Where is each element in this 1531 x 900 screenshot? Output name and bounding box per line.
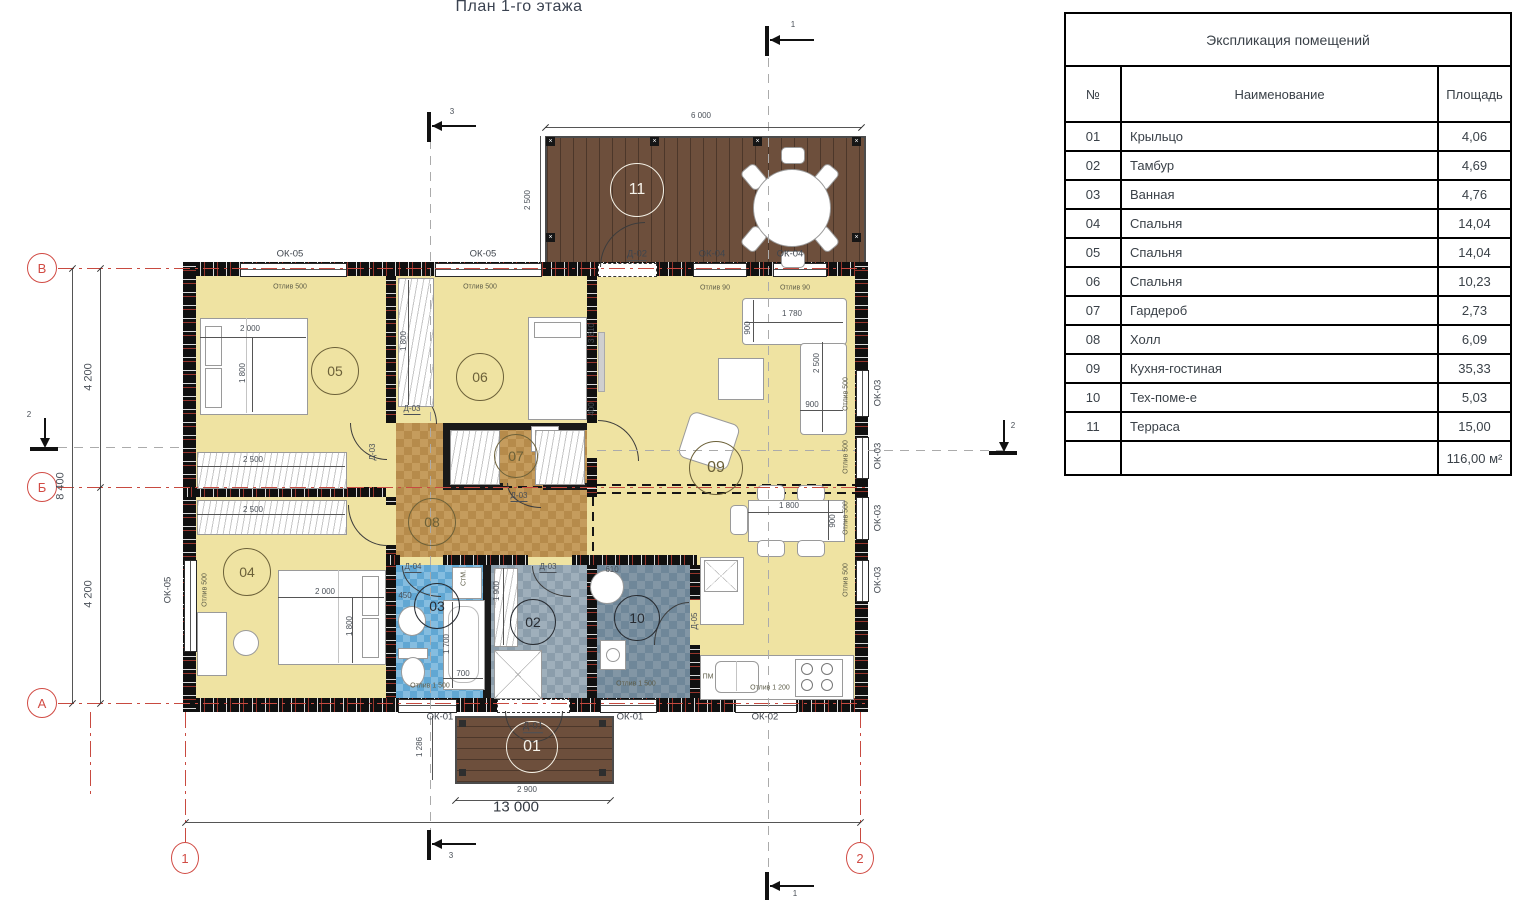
cell-area: 4,76 bbox=[1438, 180, 1511, 209]
axis-line-red bbox=[58, 268, 868, 269]
wall bbox=[443, 423, 450, 490]
door-label: Д-03 bbox=[404, 405, 421, 415]
wall bbox=[443, 555, 528, 565]
dim-label: 1 800 bbox=[239, 363, 247, 383]
cell-area: 4,06 bbox=[1438, 122, 1511, 151]
sill-label: Отлив 500 bbox=[843, 501, 850, 535]
stove-burner bbox=[801, 679, 813, 691]
cell-area: 2,73 bbox=[1438, 296, 1511, 325]
door-label: Д-03 bbox=[511, 492, 528, 502]
section-label: 1 bbox=[791, 21, 795, 29]
dim-line bbox=[753, 300, 754, 342]
dim-line bbox=[822, 342, 823, 432]
sink-divider bbox=[736, 661, 737, 691]
dim-line bbox=[432, 716, 433, 780]
chair bbox=[233, 630, 259, 656]
closet bbox=[535, 430, 585, 485]
table-row: 02Тамбур4,69 bbox=[1065, 151, 1511, 180]
window-label: ОК-01 bbox=[427, 712, 454, 722]
cell-area: 4,69 bbox=[1438, 151, 1511, 180]
dim-label: 400 bbox=[588, 402, 596, 415]
entry-mat bbox=[494, 650, 542, 699]
window-label: ОК-03 bbox=[873, 443, 883, 470]
sill-label: Отлив 500 bbox=[843, 377, 850, 411]
axis-circle-b: Б bbox=[27, 472, 57, 502]
desk bbox=[197, 612, 227, 676]
cell-area: 6,09 bbox=[1438, 325, 1511, 354]
deck-post bbox=[459, 720, 466, 727]
section-marker bbox=[765, 872, 769, 900]
door-label: Д-04 bbox=[405, 563, 422, 573]
dim-tick bbox=[858, 124, 865, 131]
dim-line bbox=[252, 337, 253, 412]
cell-name: Спальня bbox=[1121, 238, 1438, 267]
total-area: 116,00 м² bbox=[1438, 441, 1511, 475]
sill-label: Отлив 500 bbox=[463, 284, 497, 291]
table-row: 10Тех-поме-е5,03 bbox=[1065, 383, 1511, 412]
section-arrow bbox=[770, 35, 780, 45]
section-arrow bbox=[432, 121, 442, 131]
cell-num: 04 bbox=[1065, 209, 1121, 238]
axis-line-red bbox=[58, 487, 868, 488]
sofa bbox=[800, 343, 847, 435]
room-table-body: 01Крыльцо4,0602Тамбур4,6903Ванная4,7604С… bbox=[1065, 122, 1511, 441]
appliance-label: ПМ bbox=[703, 674, 714, 681]
cell-num: 05 bbox=[1065, 238, 1121, 267]
section-marker bbox=[427, 112, 431, 142]
dim-label: 2 500 bbox=[243, 456, 263, 464]
sill-label: Отлив 90 bbox=[780, 285, 810, 292]
door-label: Д-05 bbox=[691, 613, 699, 630]
room-circle-09: 09 bbox=[689, 441, 743, 495]
section-arrow bbox=[770, 881, 780, 891]
sill-label: Отлив 1 200 bbox=[750, 685, 790, 692]
table-total-row: 116,00 м² bbox=[1065, 441, 1511, 475]
dim-line bbox=[408, 280, 409, 405]
cell-num: 09 bbox=[1065, 354, 1121, 383]
cell-num: 11 bbox=[1065, 412, 1121, 441]
chair bbox=[757, 540, 785, 557]
section-label: 1 bbox=[793, 890, 797, 898]
dim-label: 900 bbox=[744, 321, 752, 334]
dim-label: 610 bbox=[605, 566, 618, 574]
chair bbox=[781, 147, 805, 164]
section-label: 2 bbox=[27, 411, 31, 419]
deck-post: × bbox=[852, 233, 861, 242]
door-label: Д-02 bbox=[627, 249, 647, 261]
dim-label: 900 bbox=[805, 401, 818, 409]
dim-label: 2 500 bbox=[243, 506, 263, 514]
dim-label: 1 800 bbox=[779, 502, 799, 510]
explication-table: Экспликация помещений № Наименование Пло… bbox=[1064, 12, 1512, 476]
window-label: ОК-05 bbox=[277, 249, 304, 259]
table-header-row: № Наименование Площадь bbox=[1065, 66, 1511, 122]
wardrobe bbox=[197, 500, 347, 535]
cell-area: 35,33 bbox=[1438, 354, 1511, 383]
sill-label: Отлив 500 bbox=[273, 284, 307, 291]
window bbox=[184, 560, 197, 652]
dim-line bbox=[745, 322, 843, 323]
dim-label: 8 400 bbox=[56, 472, 67, 500]
table-row: 06Спальня10,23 bbox=[1065, 267, 1511, 296]
cell-name: Спальня bbox=[1121, 209, 1438, 238]
dim-label: 13 000 bbox=[493, 800, 539, 815]
section-line bbox=[58, 447, 183, 448]
appliance-label: СтМ. bbox=[461, 570, 468, 586]
room-circle-10: 10 bbox=[614, 595, 660, 641]
dim-tick bbox=[607, 797, 614, 804]
table-row: 04Спальня14,04 bbox=[1065, 209, 1511, 238]
table-row: 01Крыльцо4,06 bbox=[1065, 122, 1511, 151]
wall bbox=[587, 458, 597, 497]
window bbox=[856, 437, 869, 479]
cell-name: Ванная bbox=[1121, 180, 1438, 209]
wall bbox=[386, 545, 396, 698]
wall bbox=[386, 276, 396, 423]
cell-num: 10 bbox=[1065, 383, 1121, 412]
stove-burner bbox=[821, 679, 833, 691]
dim-line bbox=[278, 597, 384, 598]
col-header-name: Наименование bbox=[1121, 66, 1438, 122]
sill-label: Отлив 1 500 bbox=[410, 683, 450, 690]
window bbox=[240, 263, 347, 277]
cell-name: Спальня bbox=[1121, 267, 1438, 296]
deck-post: × bbox=[852, 137, 861, 146]
dim-label: 1 700 bbox=[443, 634, 451, 654]
deck-post: × bbox=[546, 233, 555, 242]
deck-post: × bbox=[546, 137, 555, 146]
cell-num: 02 bbox=[1065, 151, 1121, 180]
table-row: 07Гардероб2,73 bbox=[1065, 296, 1511, 325]
door-label: Д-03 bbox=[540, 563, 557, 573]
drawing-sheet: План 1-го этажа bbox=[0, 0, 1531, 900]
sill-label: Отлив 500 bbox=[843, 440, 850, 474]
dim-label: 900 bbox=[829, 514, 837, 527]
cell-num: 08 bbox=[1065, 325, 1121, 354]
dim-line bbox=[200, 337, 306, 338]
sink bbox=[704, 560, 738, 592]
cell-area: 5,03 bbox=[1438, 383, 1511, 412]
pillow bbox=[362, 576, 379, 616]
axis-circle-1: 1 bbox=[171, 842, 199, 874]
cell-name: Тех-поме-е bbox=[1121, 383, 1438, 412]
deck-post: × bbox=[753, 137, 762, 146]
table-title: Экспликация помещений bbox=[1065, 13, 1511, 66]
axis-circle-a: А bbox=[27, 688, 57, 718]
pillow bbox=[205, 368, 222, 408]
cell-name: Гардероб bbox=[1121, 296, 1438, 325]
sill-label: Отлив 500 bbox=[843, 563, 850, 597]
wall bbox=[386, 555, 400, 565]
dim-label: 700 bbox=[456, 670, 469, 678]
chair bbox=[797, 540, 825, 557]
wardrobe bbox=[197, 452, 347, 489]
section-line bbox=[868, 450, 1005, 451]
door-label: Д-01 bbox=[523, 721, 543, 733]
section-marker bbox=[989, 451, 1017, 455]
wall bbox=[587, 276, 597, 423]
window-label: ОК-02 bbox=[752, 712, 779, 722]
section-marker bbox=[427, 830, 431, 860]
wall bbox=[443, 423, 587, 430]
blanket-line bbox=[338, 570, 339, 663]
cell-area: 14,04 bbox=[1438, 209, 1511, 238]
window-label: ОК-05 bbox=[470, 249, 497, 259]
dim-line bbox=[503, 568, 504, 645]
section-marker bbox=[765, 26, 769, 56]
cell-num: 01 bbox=[1065, 122, 1121, 151]
room-circle-02: 02 bbox=[510, 599, 556, 645]
window-label: ОК-05 bbox=[163, 577, 173, 604]
room-circle-06: 06 bbox=[456, 353, 504, 401]
dim-label: 2 500 bbox=[813, 353, 821, 373]
deck-post: × bbox=[650, 137, 659, 146]
dim-label: 1 780 bbox=[782, 310, 802, 318]
dim-label: 4 200 bbox=[84, 363, 95, 391]
window bbox=[856, 370, 869, 417]
boiler bbox=[590, 570, 624, 604]
pillow bbox=[534, 322, 581, 338]
window bbox=[856, 560, 869, 602]
dim-label: 2 000 bbox=[240, 325, 260, 333]
dim-label: 1 286 bbox=[416, 737, 424, 757]
dim-label: 2 500 bbox=[524, 190, 532, 210]
deck-post bbox=[599, 720, 606, 727]
section-label: 2 bbox=[1011, 422, 1015, 430]
door-label: Д-03 bbox=[369, 444, 377, 461]
dim-line bbox=[800, 410, 843, 411]
beam-dashed bbox=[592, 497, 594, 557]
window bbox=[693, 263, 747, 277]
window-label: ОК-03 bbox=[873, 380, 883, 407]
cell-name: Тамбур bbox=[1121, 151, 1438, 180]
cell-area: 14,04 bbox=[1438, 238, 1511, 267]
page-title: План 1-го этажа bbox=[455, 0, 582, 16]
cell-num: 07 bbox=[1065, 296, 1121, 325]
dim-line bbox=[545, 127, 862, 128]
wall bbox=[690, 565, 700, 600]
coffee-table bbox=[718, 358, 764, 400]
total-empty bbox=[1121, 441, 1438, 475]
deck-post bbox=[459, 769, 466, 776]
cell-area: 15,00 bbox=[1438, 412, 1511, 441]
section-arrow bbox=[432, 839, 442, 849]
dim-label: 3 810 bbox=[588, 323, 596, 343]
stove-burner bbox=[821, 663, 833, 675]
cell-area: 10,23 bbox=[1438, 267, 1511, 296]
dim-line bbox=[185, 822, 860, 823]
tv bbox=[598, 332, 605, 392]
window-label: ОК-03 bbox=[873, 567, 883, 594]
table-row: 11Терраса15,00 bbox=[1065, 412, 1511, 441]
pillow bbox=[205, 326, 222, 366]
axis-line-red bbox=[90, 712, 91, 794]
total-empty bbox=[1065, 441, 1121, 475]
axis-circle-2: 2 bbox=[846, 842, 874, 874]
table-row: 09Кухня-гостиная35,33 bbox=[1065, 354, 1511, 383]
room-circle-11: 11 bbox=[610, 163, 664, 217]
room-circle-07: 07 bbox=[494, 434, 538, 478]
dim-label: 2 900 bbox=[517, 786, 537, 794]
round-table bbox=[753, 169, 831, 247]
wall bbox=[572, 555, 697, 565]
col-header-area: Площадь bbox=[1438, 66, 1511, 122]
dim-line bbox=[197, 514, 345, 515]
sill-label: Отлив 500 bbox=[202, 573, 209, 607]
sill-label: Отлив 90 bbox=[700, 285, 730, 292]
wall bbox=[690, 645, 700, 698]
dim-line bbox=[443, 678, 483, 679]
cell-num: 06 bbox=[1065, 267, 1121, 296]
cell-name: Крыльцо bbox=[1121, 122, 1438, 151]
cell-name: Терраса bbox=[1121, 412, 1438, 441]
room-circle-04: 04 bbox=[223, 548, 271, 596]
section-line bbox=[430, 140, 431, 830]
window-label: ОК-03 bbox=[873, 505, 883, 532]
dim-line bbox=[540, 136, 541, 264]
section-label: 3 bbox=[449, 852, 453, 860]
stove-burner bbox=[801, 663, 813, 675]
dim-label: 1 900 bbox=[493, 581, 501, 601]
wall bbox=[386, 497, 396, 505]
dim-label: 2 000 bbox=[315, 588, 335, 596]
closet bbox=[450, 430, 500, 485]
section-line bbox=[768, 58, 769, 872]
window bbox=[435, 263, 542, 277]
section-marker bbox=[30, 447, 58, 451]
window-label: ОК-01 bbox=[617, 712, 644, 722]
window-label: ОК-04 bbox=[777, 249, 804, 259]
dim-label: 4 200 bbox=[84, 580, 95, 608]
col-header-num: № bbox=[1065, 66, 1121, 122]
axis-line-red bbox=[58, 703, 868, 704]
cell-num: 03 bbox=[1065, 180, 1121, 209]
table-row: 08Холл6,09 bbox=[1065, 325, 1511, 354]
washer-door bbox=[606, 648, 620, 662]
sill-label: Отлив 1 500 bbox=[616, 681, 656, 688]
dim-line bbox=[72, 268, 73, 703]
dim-label: 450 bbox=[398, 592, 411, 600]
table-row: 03Ванная4,76 bbox=[1065, 180, 1511, 209]
cell-name: Холл bbox=[1121, 325, 1438, 354]
dim-label: 6 000 bbox=[691, 112, 711, 120]
table-row: 05Спальня14,04 bbox=[1065, 238, 1511, 267]
section-label: 3 bbox=[450, 108, 454, 116]
dim-label: 1 800 bbox=[400, 331, 408, 351]
deck-post bbox=[599, 769, 606, 776]
cell-name: Кухня-гостиная bbox=[1121, 354, 1438, 383]
axis-circle-v: В bbox=[27, 253, 57, 283]
window-label: ОК-04 bbox=[699, 249, 726, 259]
room-circle-03: 03 bbox=[414, 583, 460, 629]
room-circle-05: 05 bbox=[311, 347, 359, 395]
window bbox=[856, 497, 869, 540]
table-title-row: Экспликация помещений bbox=[1065, 13, 1511, 66]
pillow bbox=[362, 618, 379, 658]
dim-line bbox=[197, 466, 345, 467]
dim-label: 1 800 bbox=[346, 616, 354, 636]
room-circle-08: 08 bbox=[408, 498, 456, 546]
chair bbox=[730, 505, 748, 535]
